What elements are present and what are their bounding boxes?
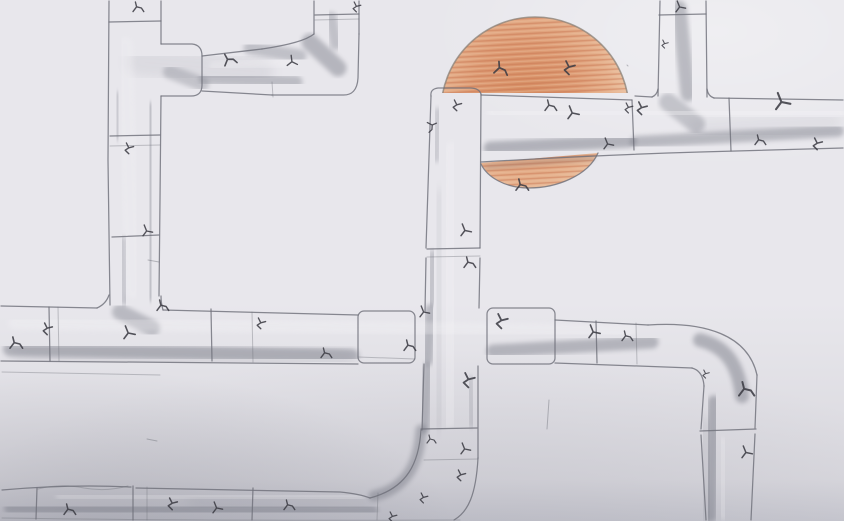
stray-pencil-mark	[547, 400, 549, 429]
crack-mark	[427, 435, 436, 443]
crack-mark	[404, 340, 416, 350]
crack-mark	[133, 2, 144, 12]
pipe-maze-drawing	[0, 0, 844, 521]
stray-pencil-mark	[627, 65, 628, 66]
crack-mark	[353, 2, 361, 12]
crack-mark	[662, 40, 668, 48]
crack-mark	[461, 443, 471, 454]
crack-mark	[703, 370, 709, 378]
crack-mark	[420, 493, 428, 503]
crack-mark	[813, 138, 822, 150]
crack-mark	[461, 224, 471, 236]
crack-mark	[453, 100, 461, 111]
crack-mark	[464, 257, 476, 267]
sketch-photo: Hand-drawn pencil sketch of a maze of in…	[0, 0, 844, 521]
stray-marks	[147, 65, 628, 441]
crack-mark	[742, 446, 752, 458]
pipe-joints	[36, 14, 756, 520]
stray-pencil-mark	[147, 439, 157, 441]
crack-mark	[389, 512, 397, 521]
crack-mark	[457, 470, 465, 481]
